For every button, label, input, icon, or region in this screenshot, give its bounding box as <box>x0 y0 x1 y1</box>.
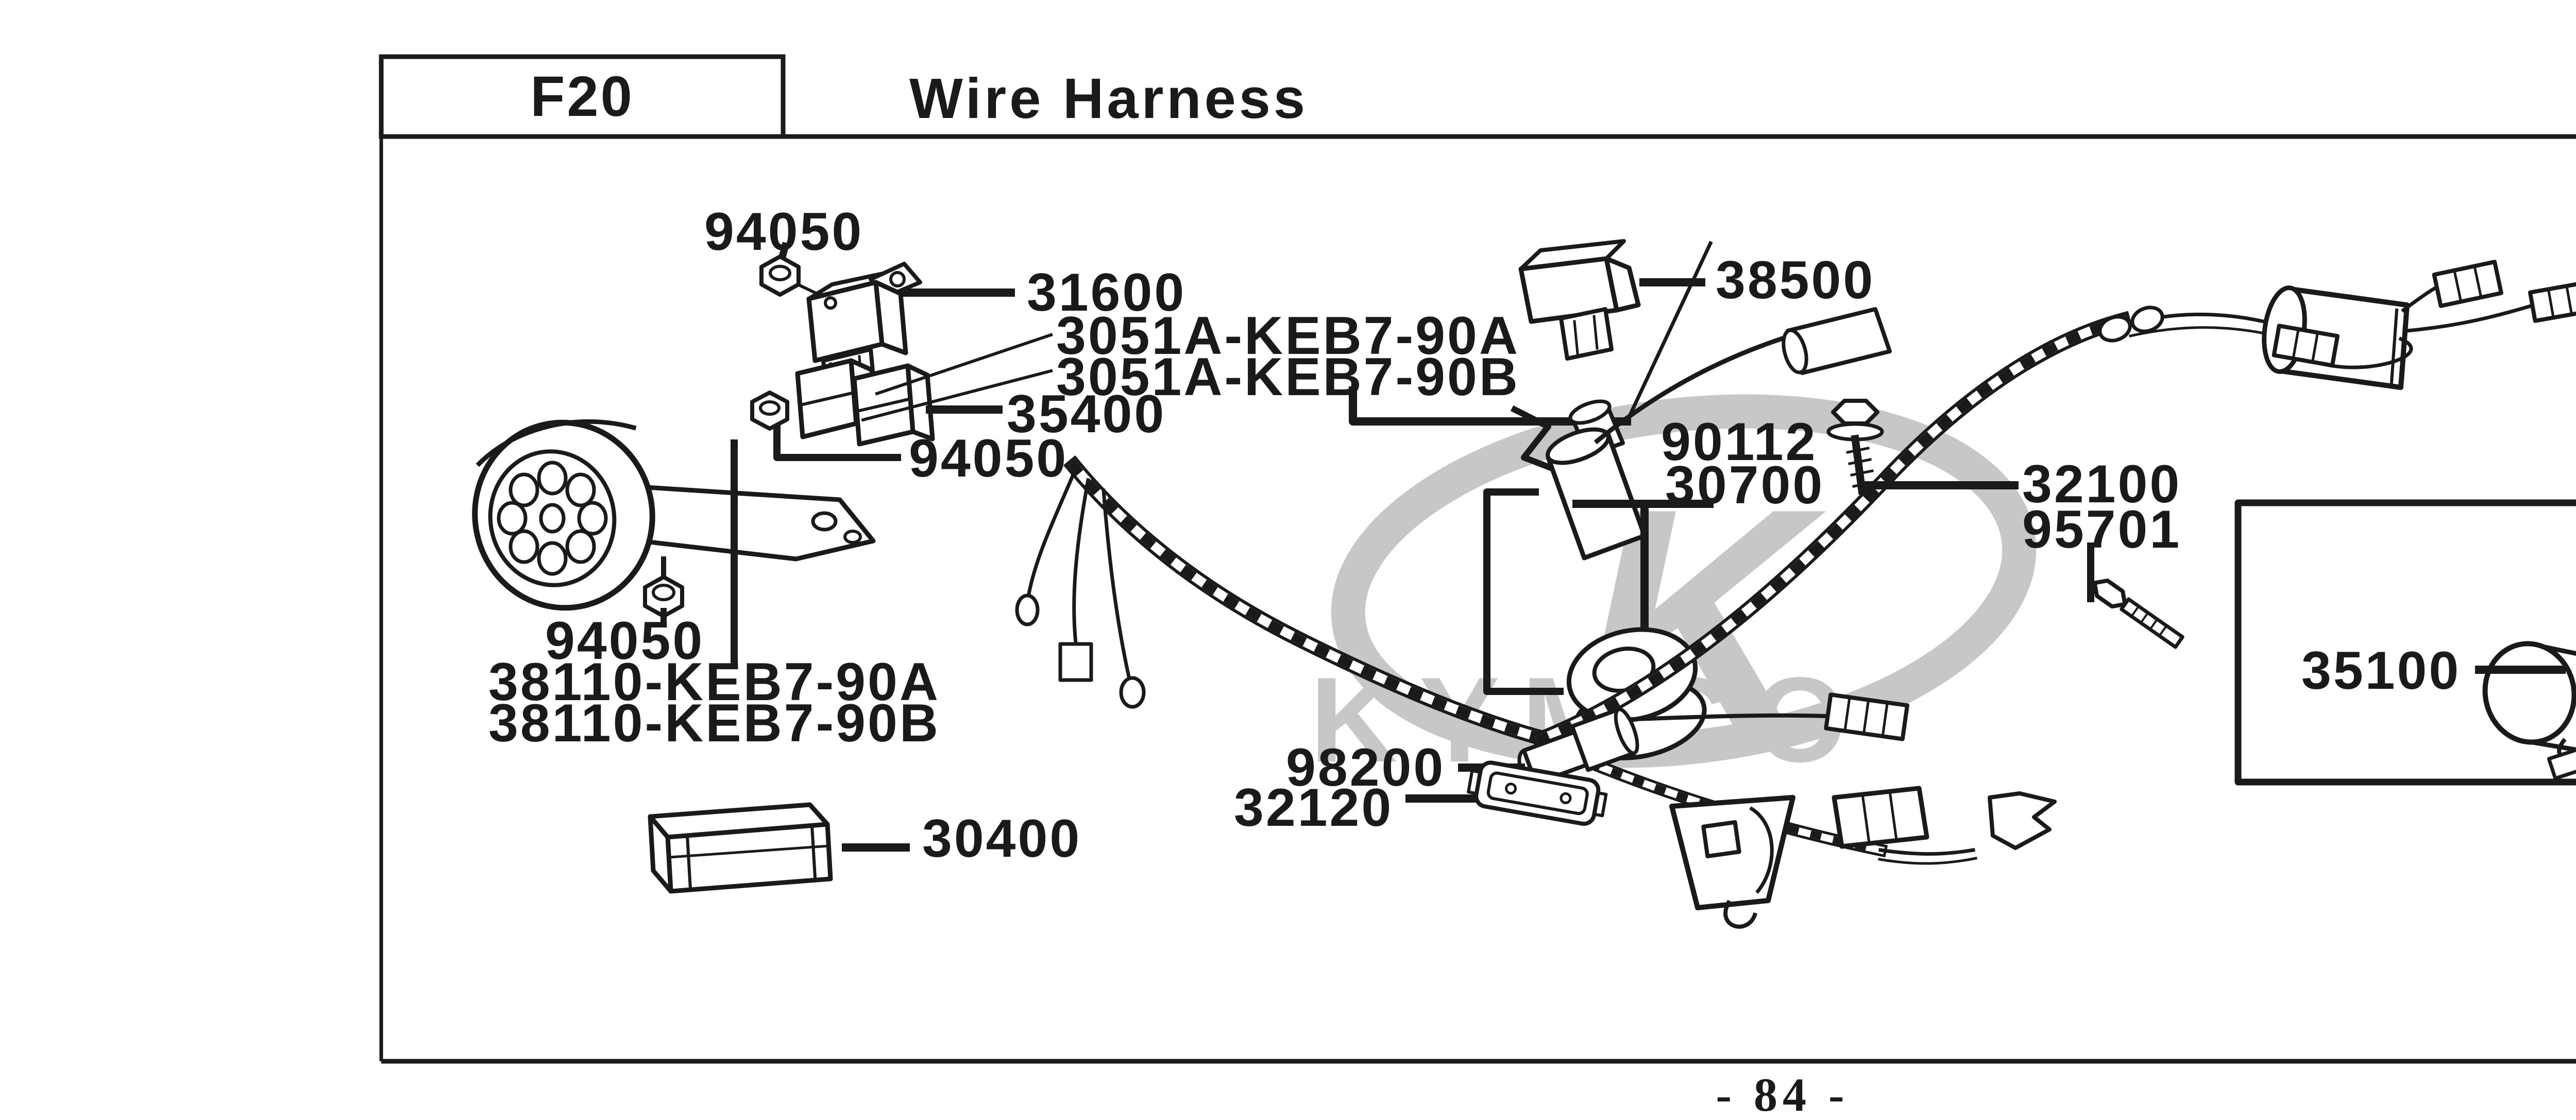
part-label-94050: 94050 <box>909 432 1068 485</box>
page-code: F20 <box>381 57 783 137</box>
flasher-relay-illustration <box>1521 241 1638 359</box>
page-title: Wire Harness <box>909 66 1308 131</box>
catalog-page: K KYMCO <box>0 0 2576 1120</box>
part-label-94050: 94050 <box>704 205 863 259</box>
condenser-and-connectors-illustration <box>2096 262 2576 387</box>
relay-cluster-illustration <box>734 246 933 660</box>
page-number: - 84 - <box>1628 1067 1937 1120</box>
part-label-38500: 38500 <box>1716 253 1875 307</box>
horn-illustration <box>460 409 873 622</box>
part-label-38110-keb7-90b: 38110-KEB7-90B <box>488 697 940 750</box>
part-label-35100: 35100 <box>2301 644 2461 698</box>
part-label-32120: 32120 <box>1234 781 1393 835</box>
parts-diagram-illustration: K KYMCO <box>0 0 2576 1120</box>
part-label-30700: 30700 <box>1665 459 1824 512</box>
bolt-95701-illustration <box>2089 546 2184 650</box>
part-label-95701: 95701 <box>2022 503 2181 556</box>
part-label-30400: 30400 <box>922 812 1081 866</box>
battery-cable-parts-illustration <box>1672 788 2055 927</box>
cdi-unit-illustration <box>650 805 831 891</box>
ignition-switch-illustration <box>2476 616 2576 778</box>
